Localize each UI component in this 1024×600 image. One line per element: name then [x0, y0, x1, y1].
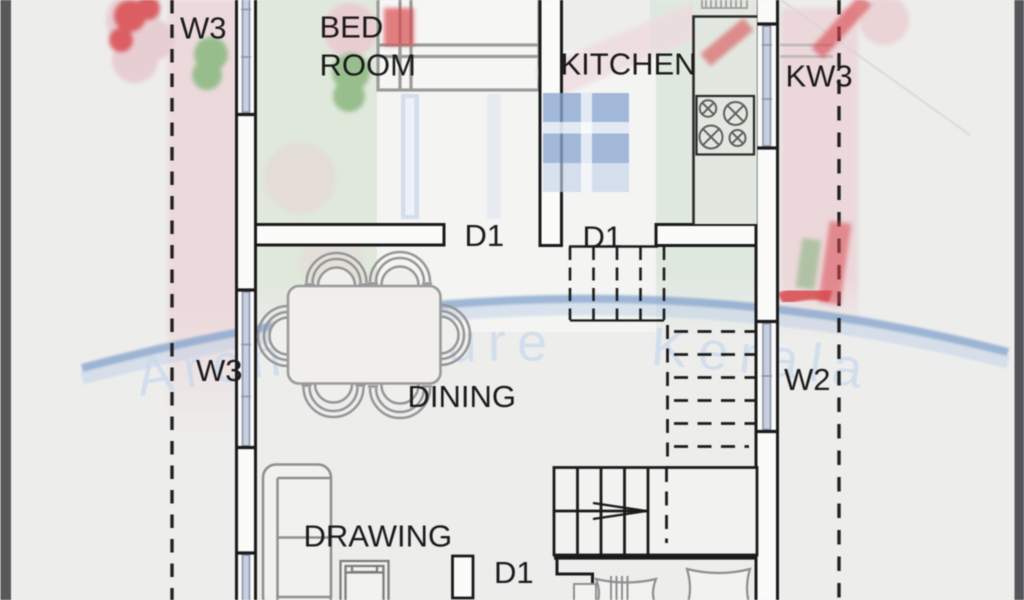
svg-text:W2: W2 — [784, 362, 831, 397]
svg-text:D1: D1 — [583, 220, 623, 255]
svg-text:KITCHEN: KITCHEN — [561, 47, 697, 82]
svg-text:W3: W3 — [180, 11, 227, 46]
svg-text:D1: D1 — [465, 218, 505, 253]
svg-text:W3: W3 — [196, 353, 243, 388]
svg-text:ROOM: ROOM — [320, 48, 416, 83]
svg-text:KW3: KW3 — [786, 59, 853, 94]
svg-text:BED: BED — [320, 10, 384, 45]
svg-text:DINING: DINING — [408, 379, 517, 414]
svg-text:DRAWING: DRAWING — [304, 519, 453, 554]
svg-text:D1: D1 — [494, 555, 534, 590]
